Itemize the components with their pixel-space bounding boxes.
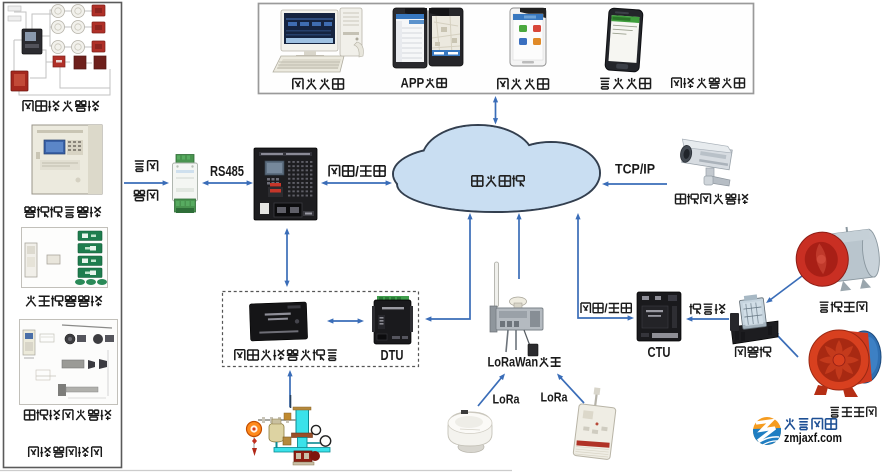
svg-text:RS485: RS485 — [210, 164, 244, 180]
svg-text:LoRa: LoRa — [541, 390, 569, 405]
svg-text:TCP/IP: TCP/IP — [615, 161, 655, 176]
svg-text:LoRaWan: LoRaWan — [488, 355, 539, 370]
svg-text:zmjaxf.com: zmjaxf.com — [784, 430, 842, 445]
svg-text:CTU: CTU — [648, 345, 671, 361]
svg-text:DTU: DTU — [381, 348, 404, 364]
svg-text:/: / — [604, 301, 608, 315]
svg-text:LoRa: LoRa — [493, 392, 521, 407]
svg-text:/: / — [355, 164, 359, 179]
svg-text:APP: APP — [401, 76, 425, 91]
